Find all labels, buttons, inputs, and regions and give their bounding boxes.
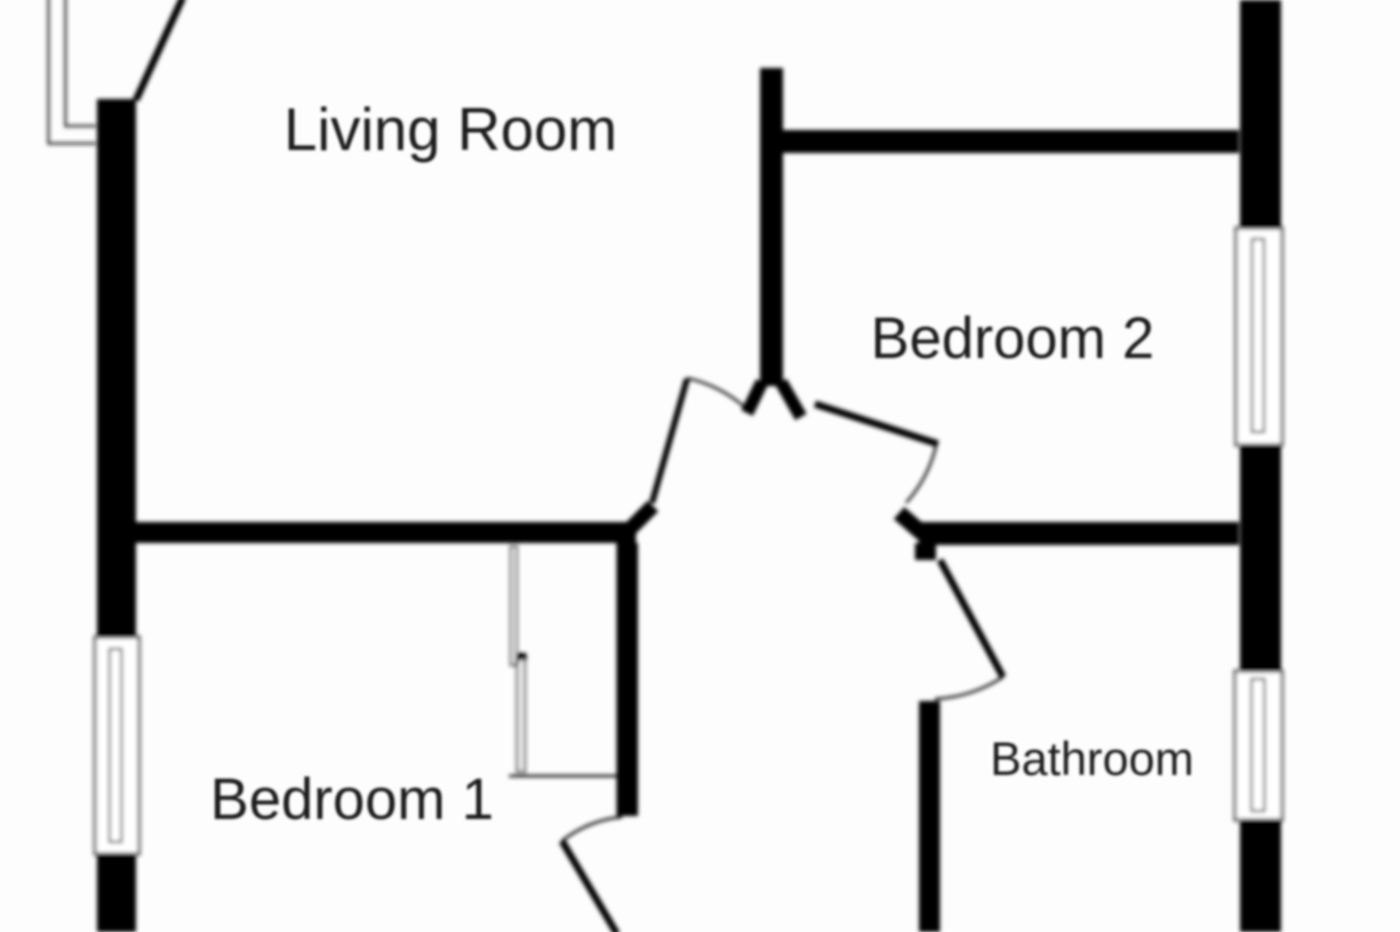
svg-text:Bedroom 1: Bedroom 1 <box>210 767 494 832</box>
svg-text:Bedroom 2: Bedroom 2 <box>871 306 1155 371</box>
svg-text:Bathroom: Bathroom <box>990 732 1194 785</box>
svg-text:Living Room: Living Room <box>284 96 618 163</box>
